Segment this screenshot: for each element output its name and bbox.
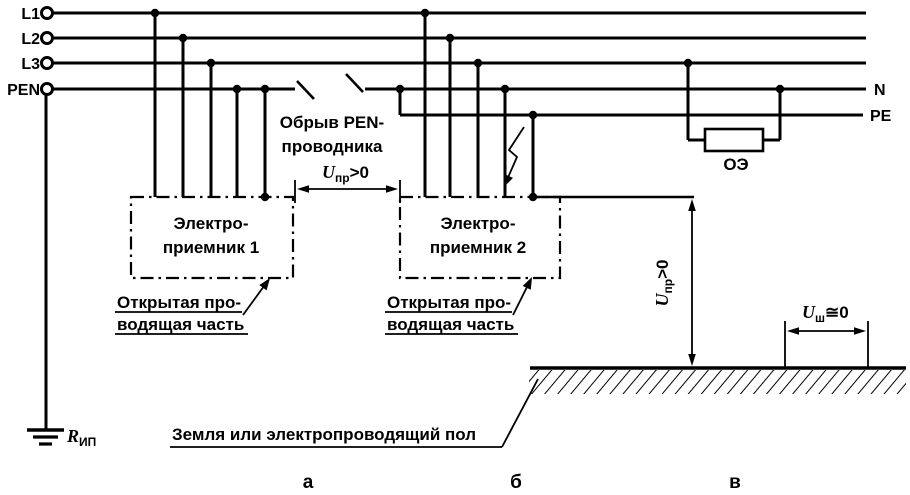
exposed-part2-line1: Открытая про- bbox=[387, 293, 511, 312]
touch-voltage-subscript: пр bbox=[335, 171, 350, 185]
arrowhead-left bbox=[297, 185, 309, 193]
junction-dot bbox=[179, 34, 187, 42]
exposed-part-callout-2: Открытая про- водящая часть bbox=[385, 275, 536, 334]
label-l3: L3 bbox=[21, 56, 40, 73]
receiver2-label-line1: Электро- bbox=[441, 214, 516, 233]
arrowhead-right bbox=[854, 327, 866, 335]
source-resistance-symbol: R bbox=[66, 426, 79, 446]
oe-label: ОЭ bbox=[723, 155, 748, 174]
receiver2-label-line2: приемник 2 bbox=[430, 238, 526, 257]
source-terminals: L1 L2 L3 PEN bbox=[7, 6, 52, 99]
arrowhead-left bbox=[787, 327, 799, 335]
exposed-part2-line2: водящая часть bbox=[387, 315, 514, 334]
receiver2-feeders bbox=[400, 13, 533, 197]
touch-voltage-relation: >0 bbox=[350, 163, 369, 182]
ground-surface bbox=[529, 368, 906, 394]
pen-break-label-line1: Обрыв PEN- bbox=[280, 113, 384, 132]
touch-voltage-subscript: пр bbox=[661, 279, 675, 294]
caption-a: а bbox=[303, 472, 314, 493]
label-pe: PE bbox=[870, 108, 892, 125]
exposed-part1-line1: Открытая про- bbox=[117, 293, 241, 312]
touch-voltage-dimension-vertical: Uпр>0 bbox=[533, 197, 696, 366]
source-earthing: RИП bbox=[27, 95, 96, 449]
receiver1-label-line2: приемник 1 bbox=[163, 238, 259, 257]
receiver1-feeders bbox=[155, 13, 265, 197]
terminal-l1-circle bbox=[42, 8, 53, 19]
terminal-l2-circle bbox=[42, 33, 53, 44]
junction-dot bbox=[446, 34, 454, 42]
right-conductor-labels: N PE bbox=[870, 82, 892, 125]
arrowhead-up bbox=[688, 199, 696, 211]
junction-dot bbox=[474, 59, 482, 67]
oe-load-branch: ОЭ bbox=[688, 63, 780, 174]
arrowhead-down bbox=[688, 354, 696, 366]
lightning-bolt bbox=[506, 127, 524, 182]
touch-voltage-label-h: Uпр>0 bbox=[322, 162, 369, 185]
junction-dot bbox=[684, 59, 692, 67]
source-resistance-label: RИП bbox=[66, 426, 96, 449]
figure-captions: а б в bbox=[303, 472, 741, 493]
label-pen: PEN bbox=[7, 82, 40, 99]
pen-break-slash-1 bbox=[297, 81, 314, 99]
diagram-canvas: L1 L2 L3 PEN N PE ОЭ bbox=[0, 0, 910, 495]
arrowhead-right bbox=[386, 185, 398, 193]
touch-voltage-dimension-horizontal: Uпр>0 bbox=[295, 162, 400, 203]
touch-voltage-symbol: U bbox=[652, 292, 672, 306]
label-l2: L2 bbox=[21, 31, 40, 48]
junction-dot bbox=[501, 85, 509, 93]
step-voltage-symbol: U bbox=[802, 302, 816, 322]
label-l1: L1 bbox=[21, 6, 40, 23]
receiver1-label-line1: Электро- bbox=[174, 214, 249, 233]
terminal-pen-circle bbox=[42, 84, 53, 95]
pen-break-label-line2: проводника bbox=[282, 137, 383, 156]
leader-line bbox=[502, 379, 538, 447]
step-voltage-dimension: Uш≅0 bbox=[785, 302, 868, 367]
step-voltage-label: Uш≅0 bbox=[802, 302, 849, 325]
touch-voltage-relation: >0 bbox=[653, 260, 672, 279]
terminal-l3-circle bbox=[42, 58, 53, 69]
caption-b: б bbox=[510, 472, 522, 493]
exposed-part-callout-1: Открытая про- водящая часть bbox=[115, 275, 274, 334]
junction-dot bbox=[396, 85, 404, 93]
earth-callout: Земля или электропроводящий пол bbox=[170, 379, 538, 447]
junction-dot bbox=[233, 85, 241, 93]
label-n: N bbox=[874, 82, 886, 99]
touch-voltage-symbol: U bbox=[322, 162, 336, 182]
pen-break-annotation: Обрыв PEN- проводника bbox=[280, 113, 384, 156]
ground-hatching bbox=[529, 370, 906, 394]
source-resistance-subscript: ИП bbox=[79, 435, 96, 449]
pen-break-slash-2 bbox=[346, 74, 363, 92]
oe-load-box bbox=[705, 129, 763, 151]
step-voltage-subscript: ш bbox=[815, 311, 825, 325]
junction-dot bbox=[261, 85, 269, 93]
receiver-boxes: Электро- приемник 1 Электро- приемник 2 bbox=[131, 197, 560, 278]
junction-dot bbox=[421, 9, 429, 17]
bus-lines bbox=[53, 13, 866, 115]
touch-voltage-label-v: Uпр>0 bbox=[652, 260, 675, 307]
junction-dot bbox=[207, 59, 215, 67]
step-voltage-relation: ≅0 bbox=[825, 303, 849, 322]
earth-label: Земля или электропроводящий пол bbox=[172, 425, 476, 444]
caption-v: в bbox=[729, 472, 741, 493]
junction-dot bbox=[151, 9, 159, 17]
exposed-part1-line2: водящая часть bbox=[117, 315, 244, 334]
junction-dot bbox=[529, 111, 537, 119]
junction-dot bbox=[776, 85, 784, 93]
figure-pen-break-diagram: L1 L2 L3 PEN N PE ОЭ bbox=[0, 0, 910, 495]
